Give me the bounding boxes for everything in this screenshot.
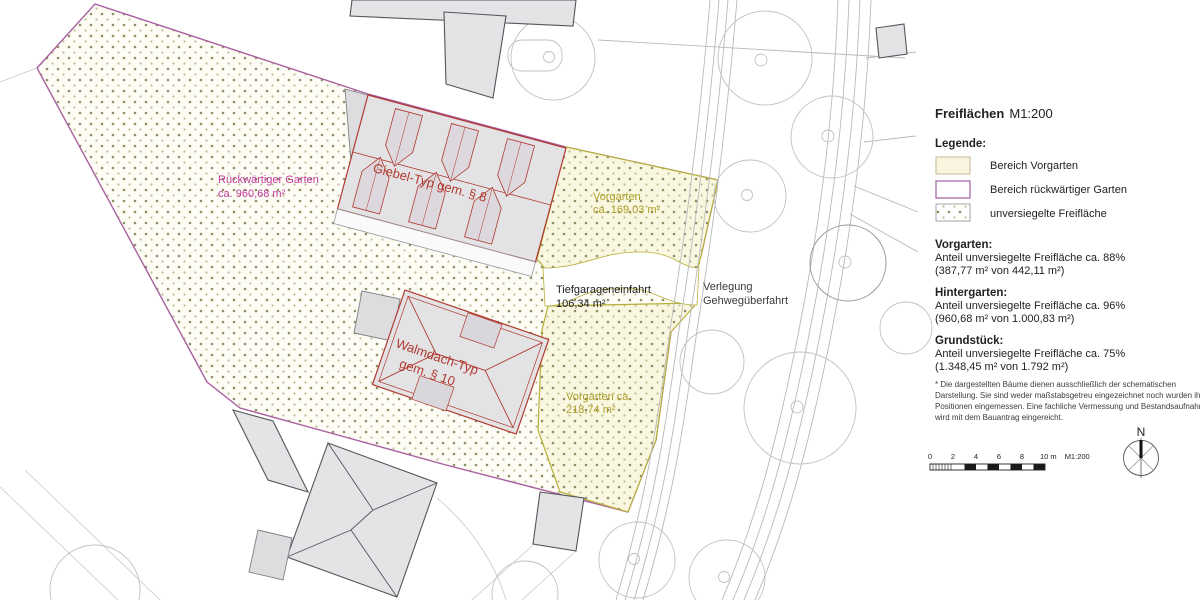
rear-garden-label-line1: Rückwärtiger Garten — [218, 174, 319, 186]
footnote: * Die dargestellten Bäume dienen ausschl… — [934, 380, 1200, 422]
front-garden-top-label-line2: ca. 169,03 m² — [593, 204, 661, 216]
stats-hintergarten-line2: (960,68 m² von 1.000,83 m²) — [935, 313, 1074, 325]
scale-bar: 0 2 4 6 8 10 mM1:200 — [928, 452, 1090, 470]
stats-grundstueck: Grundstück: Anteil unversiegelte Freiflä… — [935, 335, 1125, 373]
stats-hintergarten-heading: Hintergarten: — [935, 287, 1007, 299]
neighbor-shed-northeast — [876, 24, 907, 58]
front-garden-top-label-line1: Vorgarten — [593, 191, 641, 203]
stats-vorgarten-heading: Vorgarten: — [935, 239, 992, 251]
scale-tick-0: 0 — [928, 452, 932, 461]
legend-label-freiflaeche: unversiegelte Freifläche — [990, 208, 1107, 220]
stats-grundstueck-line2: (1.348,45 m² von 1.792 m²) — [935, 361, 1068, 373]
site-plan-page: Giebel-Typ gem. § 8 Walmdach-Typ gem. § … — [0, 0, 1200, 600]
legend-label-rueckgarten: Bereich rückwärtiger Garten — [990, 184, 1127, 196]
stats-grundstueck-heading: Grundstück: — [935, 335, 1003, 347]
legend-swatch-rueckgarten — [936, 181, 970, 198]
neighbor-building-north — [350, 0, 576, 98]
front-garden-bottom-label-line1: Vorgarten ca. — [566, 391, 631, 403]
stats-vorgarten: Vorgarten: Anteil unversiegelte Freifläc… — [935, 239, 1125, 277]
scale-tick-4: 4 — [974, 452, 978, 461]
stats-grundstueck-line1: Anteil unversiegelte Freifläche ca. 75% — [935, 348, 1125, 360]
stats-vorgarten-line2: (387,77 m² von 442,11 m²) — [935, 265, 1064, 277]
legend-swatch-freiflaeche — [936, 204, 970, 221]
rear-garden-label-line2: ca. 960,68 m² — [218, 188, 286, 200]
north-arrow: N — [1124, 425, 1159, 478]
footnote-line4: wird mit dem Bauantrag eingereicht. — [934, 413, 1063, 422]
garage-south — [533, 492, 584, 551]
north-label: N — [1137, 425, 1146, 439]
stats-hintergarten: Hintergarten: Anteil unversiegelte Freif… — [935, 287, 1125, 325]
site-plan-drawing: Giebel-Typ gem. § 8 Walmdach-Typ gem. § … — [0, 0, 1200, 600]
scale-tick-2: 2 — [951, 452, 955, 461]
driveway-label-line2: 106,34 m² — [556, 298, 606, 310]
plan-title: FreiflächenM1:200 — [935, 106, 1053, 121]
footnote-line3: Positionen eingemessen. Eine fachliche V… — [935, 402, 1200, 411]
stats-hintergarten-line1: Anteil unversiegelte Freifläche ca. 96% — [935, 300, 1125, 312]
front-garden-bottom-label-line2: 218,74 m² — [566, 404, 616, 416]
sidewalk-note-line1: Verlegung — [703, 281, 753, 293]
footnote-line1: * Die dargestellten Bäume dienen ausschl… — [935, 380, 1176, 389]
legend-label-vorgarten: Bereich Vorgarten — [990, 160, 1078, 172]
legend-heading: Legende: — [935, 138, 986, 150]
info-panel: FreiflächenM1:200 Legende: Bereich Vorga… — [928, 106, 1200, 478]
driveway-label-line1: Tiefgarageneinfahrt — [556, 284, 651, 296]
scale-tick-8: 8 — [1020, 452, 1024, 461]
scale-end-label: 10 mM1:200 — [1040, 452, 1090, 461]
legend-swatch-vorgarten — [936, 157, 970, 174]
stats-vorgarten-line1: Anteil unversiegelte Freifläche ca. 88% — [935, 252, 1125, 264]
scale-tick-6: 6 — [997, 452, 1001, 461]
sidewalk-note-line2: Gehwegüberfahrt — [703, 295, 788, 307]
footnote-line2: Darstellung. Sie sind weder maßstabsgetr… — [935, 391, 1200, 400]
